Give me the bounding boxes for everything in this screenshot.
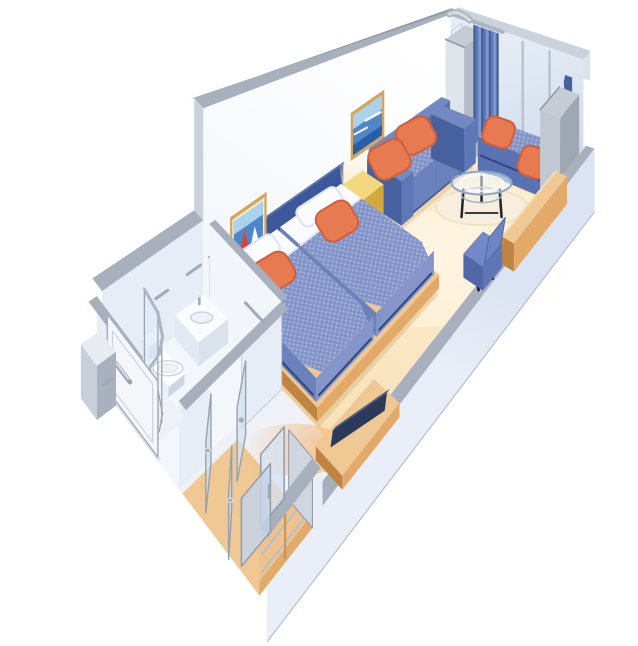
scene-canvas <box>0 0 638 646</box>
stateroom-floorplan <box>0 0 638 646</box>
